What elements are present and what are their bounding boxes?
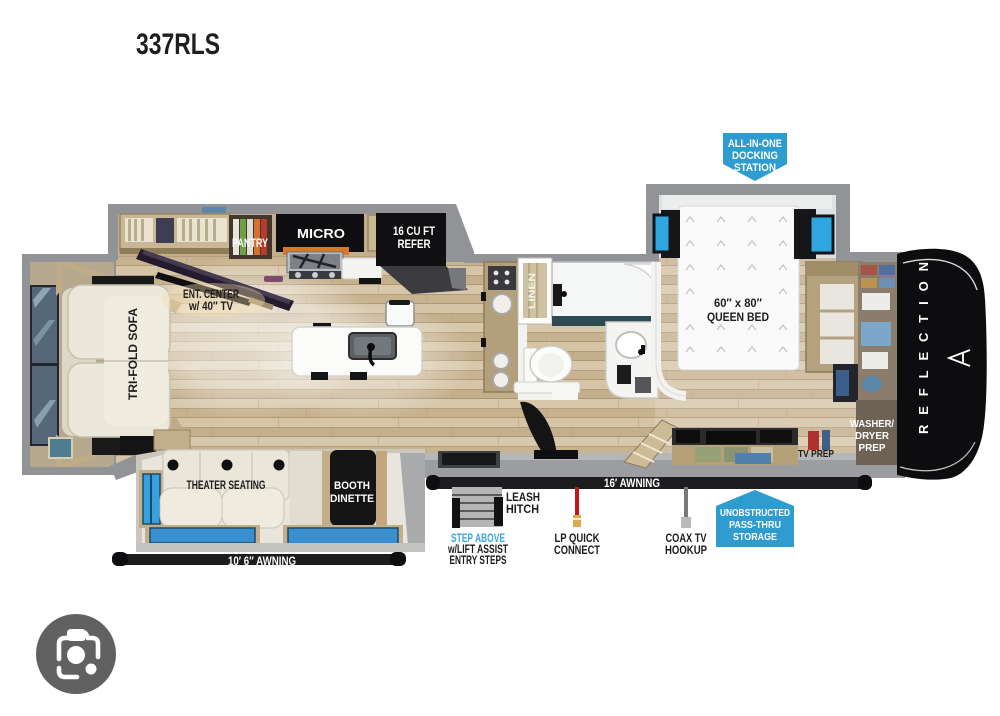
svg-text:PREP: PREP — [859, 442, 886, 454]
svg-text:MICRO: MICRO — [297, 226, 345, 241]
svg-text:ALL-IN-ONE: ALL-IN-ONE — [728, 138, 782, 150]
svg-text:337RLS: 337RLS — [136, 28, 220, 61]
svg-text:10′ 6″ AWNING: 10′ 6″ AWNING — [228, 556, 296, 568]
svg-text:ENTRY STEPS: ENTRY STEPS — [450, 553, 507, 567]
svg-text:REFER: REFER — [398, 239, 432, 251]
svg-text:STORAGE: STORAGE — [733, 531, 777, 543]
svg-text:16′ AWNING: 16′ AWNING — [604, 478, 660, 490]
svg-text:THEATER SEATING: THEATER SEATING — [187, 480, 266, 492]
svg-text:UNOBSTRUCTED: UNOBSTRUCTED — [720, 507, 790, 519]
svg-text:PASS-THRU: PASS-THRU — [729, 519, 781, 531]
svg-text:LINEN: LINEN — [527, 273, 537, 309]
svg-text:HITCH: HITCH — [506, 502, 539, 516]
svg-text:WASHER/: WASHER/ — [850, 418, 894, 430]
svg-text:BOOTH: BOOTH — [334, 480, 370, 492]
svg-text:CONNECT: CONNECT — [554, 543, 601, 557]
svg-text:PANTRY: PANTRY — [232, 236, 268, 250]
svg-text:w/ 40″ TV: w/ 40″ TV — [188, 299, 233, 313]
svg-text:16 CU FT: 16 CU FT — [393, 226, 435, 238]
svg-text:HOOKUP: HOOKUP — [665, 543, 707, 557]
svg-text:QUEEN BED: QUEEN BED — [707, 310, 769, 324]
svg-text:DOCKING: DOCKING — [732, 150, 778, 162]
svg-text:60″ x 80″: 60″ x 80″ — [714, 296, 762, 310]
svg-text:DRYER: DRYER — [855, 430, 889, 442]
svg-text:DINETTE: DINETTE — [330, 493, 374, 505]
svg-text:TRI-FOLD SOFA: TRI-FOLD SOFA — [126, 308, 140, 400]
svg-text:TV PREP: TV PREP — [798, 449, 834, 460]
svg-text:STATION: STATION — [734, 162, 776, 174]
